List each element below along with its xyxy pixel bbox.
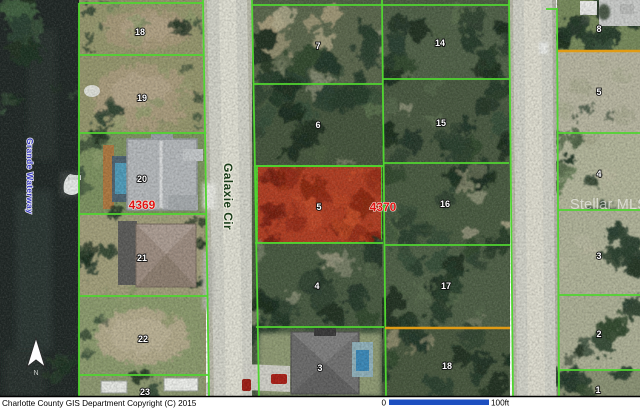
svg-text:100ft: 100ft [491, 399, 510, 408]
svg-text:4370: 4370 [370, 200, 397, 214]
svg-text:3: 3 [317, 363, 322, 373]
svg-text:17: 17 [441, 281, 451, 291]
svg-text:18: 18 [442, 361, 452, 371]
svg-text:7: 7 [315, 41, 320, 51]
svg-text:6: 6 [315, 120, 320, 130]
svg-text:20: 20 [137, 174, 147, 184]
svg-text:4369: 4369 [129, 198, 156, 212]
svg-text:3: 3 [596, 251, 601, 261]
svg-text:4: 4 [596, 169, 601, 179]
svg-text:21: 21 [137, 253, 147, 263]
svg-text:N: N [33, 370, 38, 377]
svg-text:2: 2 [596, 329, 601, 339]
svg-text:8: 8 [596, 24, 601, 34]
svg-text:0: 0 [381, 399, 386, 408]
svg-text:14: 14 [435, 38, 445, 48]
svg-text:5: 5 [316, 202, 321, 212]
svg-text:Charlotte County GIS Departmen: Charlotte County GIS Department Copyrigh… [2, 399, 197, 408]
svg-text:15: 15 [436, 118, 446, 128]
svg-text:Grande Waterway: Grande Waterway [25, 138, 35, 214]
svg-text:19: 19 [137, 93, 147, 103]
svg-text:5: 5 [596, 87, 601, 97]
svg-text:16: 16 [440, 199, 450, 209]
svg-text:22: 22 [138, 334, 148, 344]
svg-text:4: 4 [314, 281, 319, 291]
svg-text:18: 18 [135, 27, 145, 37]
svg-text:1: 1 [595, 385, 600, 395]
svg-text:23: 23 [140, 387, 150, 397]
svg-text:Stellar MLS: Stellar MLS [570, 197, 640, 213]
svg-text:Galaxie Cir: Galaxie Cir [221, 163, 235, 230]
